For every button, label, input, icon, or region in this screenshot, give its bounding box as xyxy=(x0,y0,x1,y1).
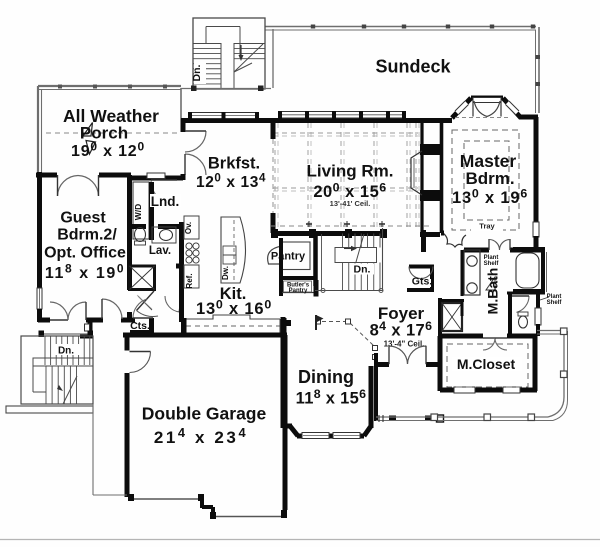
svg-text:Dw.: Dw. xyxy=(221,266,230,280)
svg-text:Dn.: Dn. xyxy=(354,264,371,276)
svg-text:Porch: Porch xyxy=(80,124,128,143)
svg-text:Bdrm.: Bdrm. xyxy=(465,169,514,188)
svg-text:W/D: W/D xyxy=(133,204,143,221)
svg-text:Cts.: Cts. xyxy=(130,320,150,332)
svg-text:Bdrm.2/: Bdrm.2/ xyxy=(57,227,117,244)
svg-text:214 x 234: 214 x 234 xyxy=(154,425,248,447)
svg-text:Shelf: Shelf xyxy=(547,300,563,306)
svg-text:Tray: Tray xyxy=(479,222,495,231)
svg-text:M.Bath: M.Bath xyxy=(485,268,501,315)
svg-text:Lnd.: Lnd. xyxy=(151,194,180,209)
svg-text:118 x 190: 118 x 190 xyxy=(45,262,125,282)
svg-text:Lav.: Lav. xyxy=(149,245,171,257)
svg-text:Dining: Dining xyxy=(298,367,354,387)
svg-text:190 x 120: 190 x 120 xyxy=(71,140,145,160)
svg-text:Opt. Office: Opt. Office xyxy=(44,244,126,261)
svg-text:M.Closet: M.Closet xyxy=(457,356,516,372)
svg-text:Brkfst.: Brkfst. xyxy=(208,155,260,173)
svg-text:Pantry: Pantry xyxy=(289,288,308,294)
svg-text:Pantry: Pantry xyxy=(271,251,306,263)
svg-text:Guest: Guest xyxy=(60,210,106,227)
svg-text:Master: Master xyxy=(460,151,517,171)
svg-text:Ref.: Ref. xyxy=(185,273,194,288)
svg-text:13'-41' Ceil.: 13'-41' Ceil. xyxy=(330,199,371,208)
svg-text:84 x 176: 84 x 176 xyxy=(370,319,433,340)
svg-text:130 x 196: 130 x 196 xyxy=(452,186,528,207)
svg-text:Ov.: Ov. xyxy=(184,222,193,234)
svg-text:Gts.: Gts. xyxy=(412,276,433,288)
svg-text:Double Garage: Double Garage xyxy=(142,404,267,424)
svg-text:118 x 156: 118 x 156 xyxy=(296,387,367,408)
svg-text:Shelf: Shelf xyxy=(484,261,500,267)
svg-text:200 x 156: 200 x 156 xyxy=(313,180,386,201)
svg-text:Dn.: Dn. xyxy=(191,64,203,81)
svg-text:Living Rm.: Living Rm. xyxy=(307,162,394,181)
svg-text:Dn.: Dn. xyxy=(58,346,74,357)
svg-text:Sundeck: Sundeck xyxy=(375,57,451,77)
